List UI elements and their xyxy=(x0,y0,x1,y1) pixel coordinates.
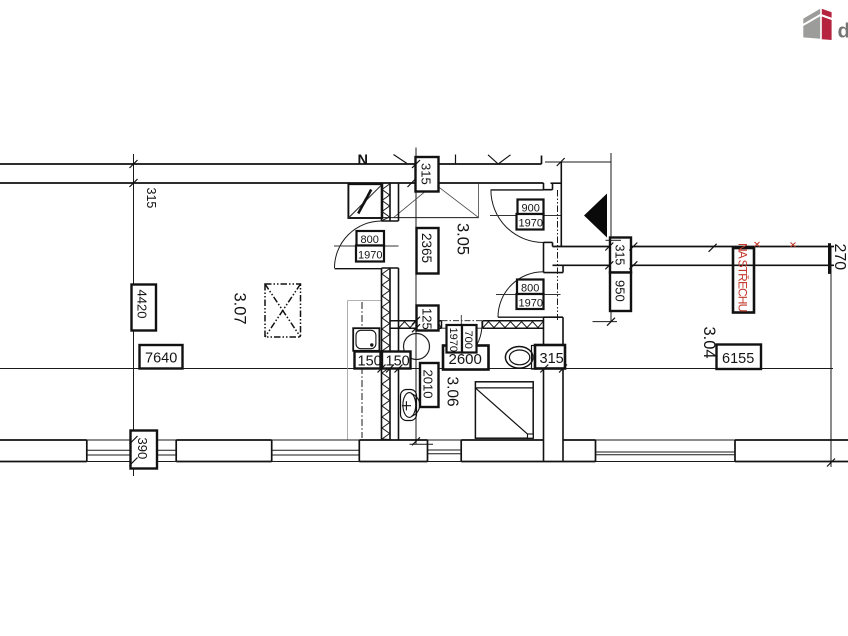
svg-text:150: 150 xyxy=(386,354,410,370)
svg-text:800: 800 xyxy=(361,234,379,246)
svg-text:150: 150 xyxy=(358,354,382,370)
svg-text:900: 900 xyxy=(522,203,540,215)
svg-text:N: N xyxy=(358,153,368,169)
svg-text:1970: 1970 xyxy=(519,298,543,310)
svg-text:2010: 2010 xyxy=(421,370,436,399)
svg-text:NA STŘECHU: NA STŘECHU xyxy=(736,243,751,312)
svg-text:125: 125 xyxy=(420,308,435,330)
svg-text:d: d xyxy=(838,20,848,43)
svg-text:315: 315 xyxy=(540,351,564,367)
svg-text:6155: 6155 xyxy=(722,351,754,367)
svg-text:950: 950 xyxy=(613,280,628,302)
svg-text:7640: 7640 xyxy=(145,351,177,367)
svg-text:3.07: 3.07 xyxy=(231,293,249,325)
svg-text:800: 800 xyxy=(521,283,539,295)
svg-text:4420: 4420 xyxy=(135,290,150,319)
svg-text:315: 315 xyxy=(613,245,627,266)
svg-text:1970: 1970 xyxy=(519,218,543,230)
svg-text:1970: 1970 xyxy=(358,250,382,262)
svg-text:270: 270 xyxy=(831,244,848,271)
svg-text:700: 700 xyxy=(462,331,474,349)
svg-text:315: 315 xyxy=(144,188,158,209)
svg-text:3.04: 3.04 xyxy=(700,327,718,359)
svg-text:3.06: 3.06 xyxy=(444,377,461,407)
svg-text:390: 390 xyxy=(135,438,150,460)
svg-text:3.05: 3.05 xyxy=(454,223,472,255)
svg-text:2365: 2365 xyxy=(419,233,434,263)
svg-text:1970: 1970 xyxy=(447,328,459,352)
svg-text:315: 315 xyxy=(419,163,434,185)
